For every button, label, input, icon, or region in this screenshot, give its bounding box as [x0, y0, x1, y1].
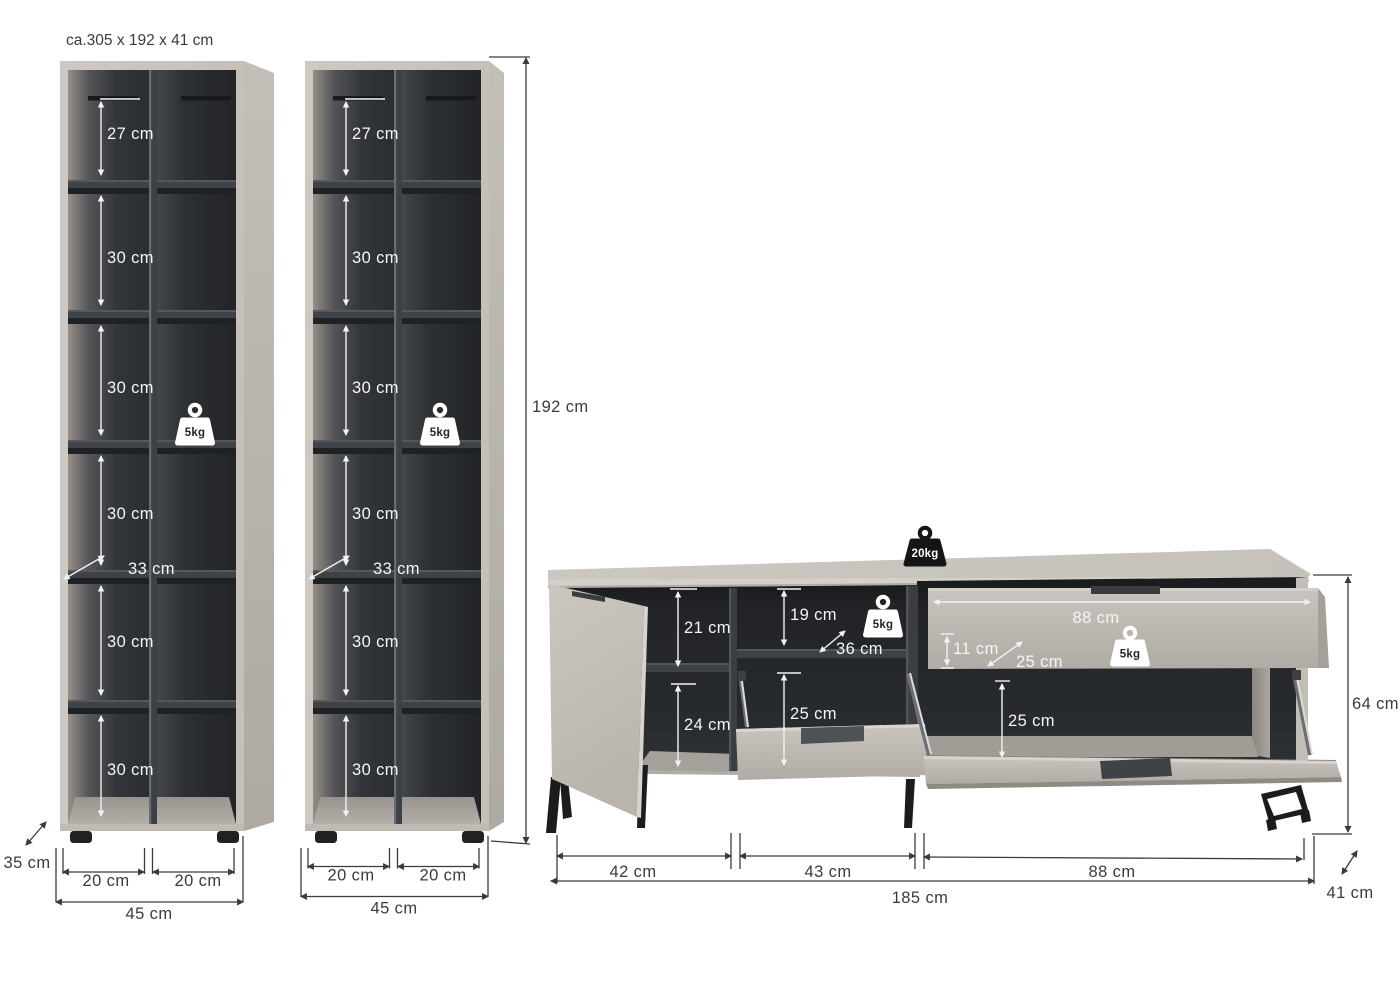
svg-text:20kg: 20kg — [911, 548, 938, 560]
svg-text:21 cm: 21 cm — [684, 619, 731, 637]
svg-text:30 cm: 30 cm — [107, 633, 154, 651]
svg-text:25 cm: 25 cm — [1016, 653, 1063, 671]
svg-text:30 cm: 30 cm — [107, 505, 154, 523]
svg-text:41 cm: 41 cm — [1327, 884, 1374, 902]
svg-text:27 cm: 27 cm — [352, 125, 399, 143]
svg-text:64 cm: 64 cm — [1352, 695, 1399, 713]
svg-text:25 cm: 25 cm — [790, 705, 837, 723]
svg-text:20 cm: 20 cm — [175, 872, 222, 890]
svg-text:30 cm: 30 cm — [352, 249, 399, 267]
svg-text:20 cm: 20 cm — [420, 867, 467, 885]
svg-text:5kg: 5kg — [1120, 649, 1140, 661]
svg-text:88 cm: 88 cm — [1073, 609, 1120, 627]
svg-text:19 cm: 19 cm — [790, 606, 837, 624]
svg-text:5kg: 5kg — [430, 427, 450, 439]
svg-text:30 cm: 30 cm — [352, 633, 399, 651]
svg-text:33 cm: 33 cm — [373, 560, 420, 578]
svg-text:30 cm: 30 cm — [352, 379, 399, 397]
svg-text:20 cm: 20 cm — [328, 867, 375, 885]
svg-text:30 cm: 30 cm — [107, 249, 154, 267]
svg-text:185 cm: 185 cm — [892, 889, 949, 907]
svg-text:30 cm: 30 cm — [107, 761, 154, 779]
svg-text:27 cm: 27 cm — [107, 125, 154, 143]
svg-text:30 cm: 30 cm — [107, 379, 154, 397]
svg-text:5kg: 5kg — [873, 619, 893, 631]
svg-text:ca.305 x 192 x 41 cm: ca.305 x 192 x 41 cm — [66, 32, 213, 49]
svg-text:88 cm: 88 cm — [1089, 863, 1136, 881]
svg-text:45 cm: 45 cm — [126, 905, 173, 923]
svg-text:11 cm: 11 cm — [953, 640, 999, 658]
svg-text:192 cm: 192 cm — [532, 398, 589, 416]
svg-text:35 cm: 35 cm — [4, 854, 51, 872]
svg-text:30 cm: 30 cm — [352, 505, 399, 523]
svg-text:43 cm: 43 cm — [805, 863, 852, 881]
svg-text:5kg: 5kg — [185, 427, 205, 439]
svg-text:20 cm: 20 cm — [83, 872, 130, 890]
svg-text:45 cm: 45 cm — [371, 900, 418, 918]
svg-text:33 cm: 33 cm — [128, 560, 175, 578]
svg-text:24 cm: 24 cm — [684, 716, 731, 734]
svg-text:25 cm: 25 cm — [1008, 712, 1055, 730]
svg-text:36 cm: 36 cm — [836, 640, 883, 658]
svg-text:30 cm: 30 cm — [352, 761, 399, 779]
svg-text:42 cm: 42 cm — [610, 863, 657, 881]
